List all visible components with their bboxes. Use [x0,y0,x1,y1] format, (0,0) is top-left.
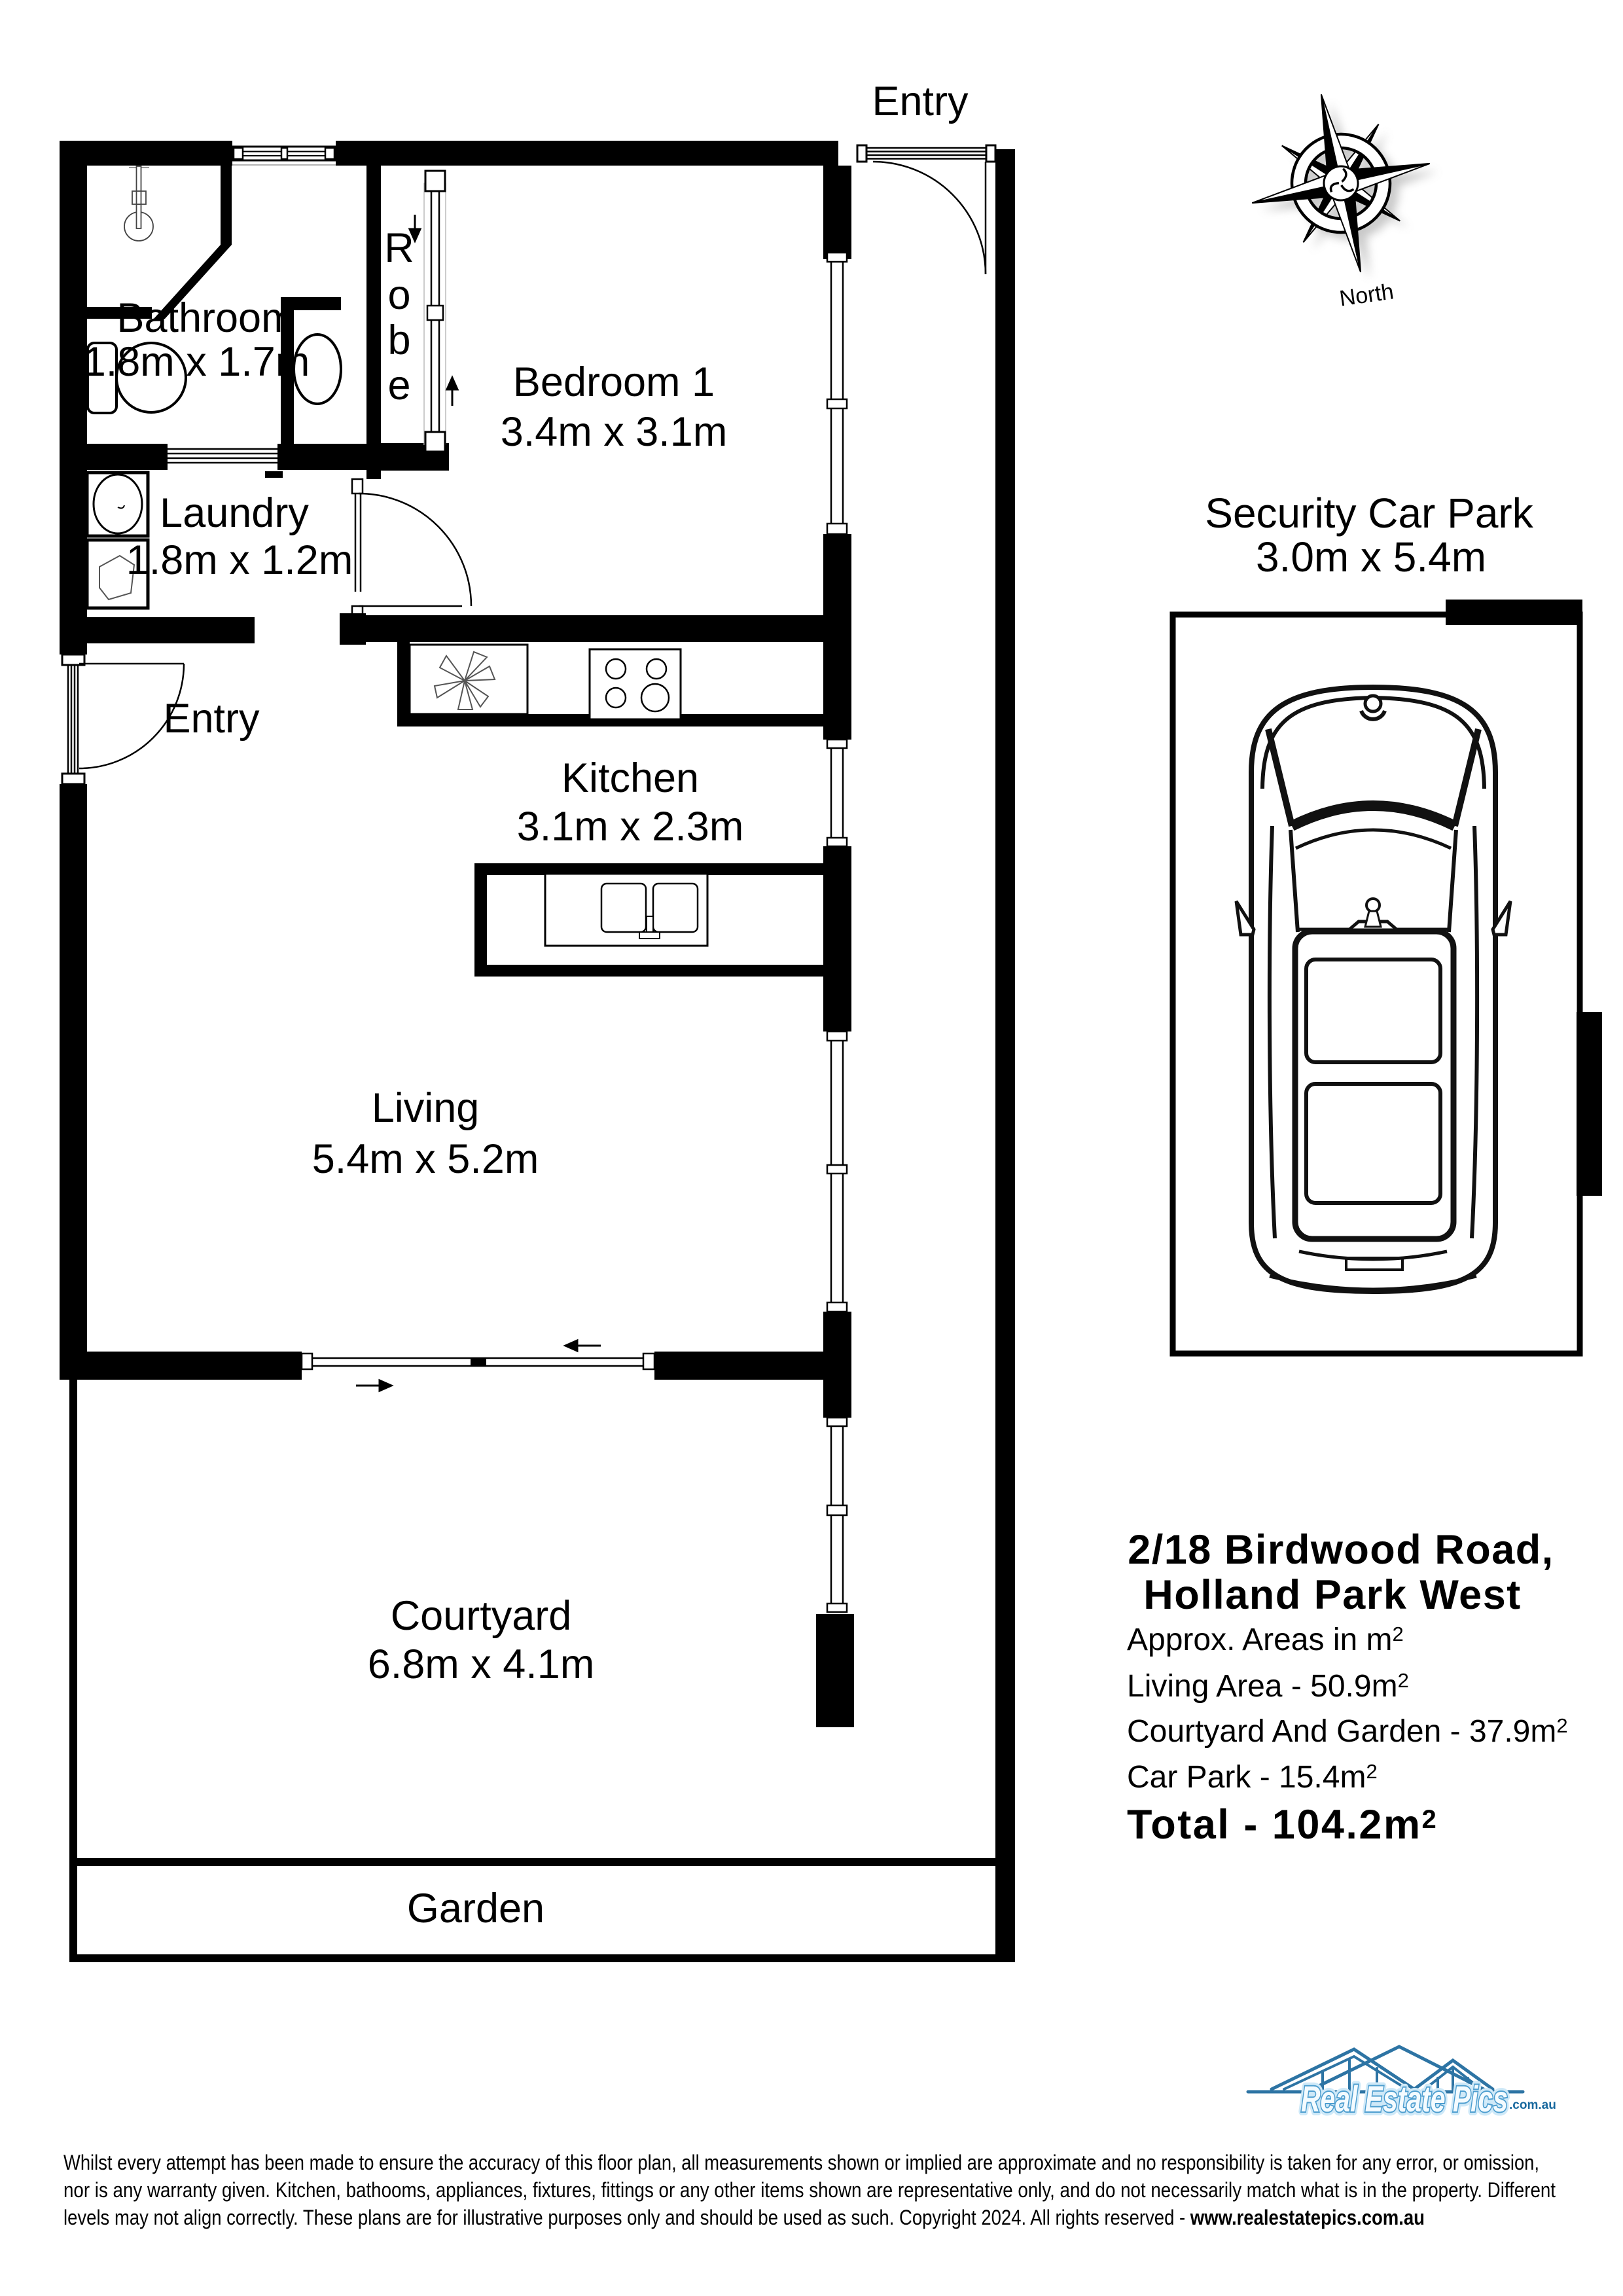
svg-text:b: b [387,317,410,363]
svg-text:3.4m x 3.1m: 3.4m x 3.1m [501,409,728,455]
svg-text:Entry: Entry [163,696,260,742]
svg-text:2/18 Birdwood Road,: 2/18 Birdwood Road, [1128,1527,1554,1573]
svg-text:Holland Park West: Holland Park West [1143,1572,1522,1618]
svg-text:Courtyard: Courtyard [391,1593,572,1639]
svg-text:3.0m x 5.4m: 3.0m x 5.4m [1256,533,1486,581]
svg-text:nor is any warranty given. Ki: nor is any warranty given. Kitchen, bath… [63,2178,1556,2202]
svg-text:Kitchen: Kitchen [562,755,699,801]
svg-text:5.4m x 5.2m: 5.4m x 5.2m [312,1136,539,1182]
svg-text:Approx. Areas in m2: Approx. Areas in m2 [1127,1623,1404,1657]
svg-text:e: e [387,363,410,408]
svg-text:R: R [384,225,414,271]
svg-text:Living Area - 50.9m2: Living Area - 50.9m2 [1127,1669,1409,1704]
svg-text:6.8m x 4.1m: 6.8m x 4.1m [368,1641,595,1687]
svg-text:Bedroom 1: Bedroom 1 [513,359,715,405]
svg-text:Courtyard And Garden - 37.9m2: Courtyard And Garden - 37.9m2 [1127,1714,1568,1749]
svg-text:1.8m x 1.2m: 1.8m x 1.2m [126,537,353,583]
svg-text:Real Estate Pics: Real Estate Pics [1301,2078,1508,2119]
svg-text:Garden: Garden [407,1886,544,1931]
svg-text:1.8m x 1.7m: 1.8m x 1.7m [83,339,310,385]
svg-text:Laundry: Laundry [160,490,309,536]
svg-text:.com.au: .com.au [1509,2098,1556,2112]
svg-text:Living: Living [372,1085,480,1131]
svg-text:Whilst every attempt has been: Whilst every attempt has been made to en… [63,2150,1539,2174]
svg-text:o: o [387,272,410,318]
svg-text:Security Car Park: Security Car Park [1205,490,1533,537]
svg-text:Bathroom: Bathroom [116,295,295,341]
svg-text:levels may not align correctly: levels may not align correctly. These pl… [63,2205,1425,2229]
svg-text:Entry: Entry [872,79,969,124]
svg-text:Car Park - 15.4m2: Car Park - 15.4m2 [1127,1760,1378,1795]
svg-text:Total - 104.2m2: Total - 104.2m2 [1127,1802,1438,1848]
svg-text:3.1m x 2.3m: 3.1m x 2.3m [517,804,744,850]
